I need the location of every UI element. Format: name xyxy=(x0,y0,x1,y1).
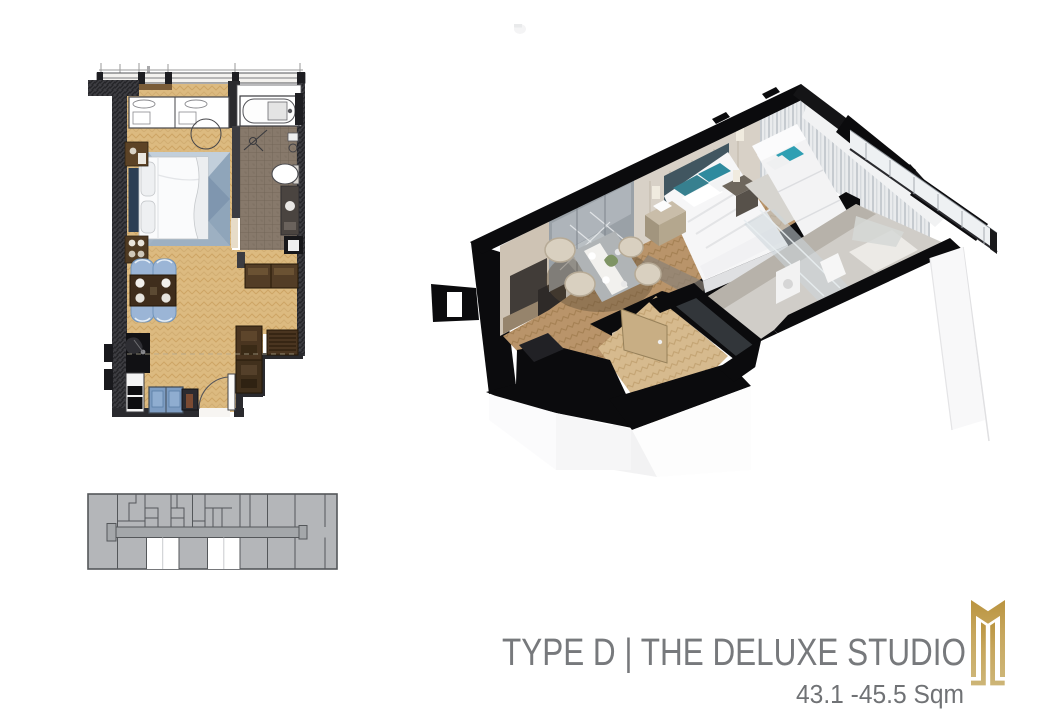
svg-text:43.1 -45.5 Sqm: 43.1 -45.5 Sqm xyxy=(796,681,964,709)
svg-text:TYPE D | THE DELUXE STUDIO: TYPE D | THE DELUXE STUDIO xyxy=(502,632,966,674)
